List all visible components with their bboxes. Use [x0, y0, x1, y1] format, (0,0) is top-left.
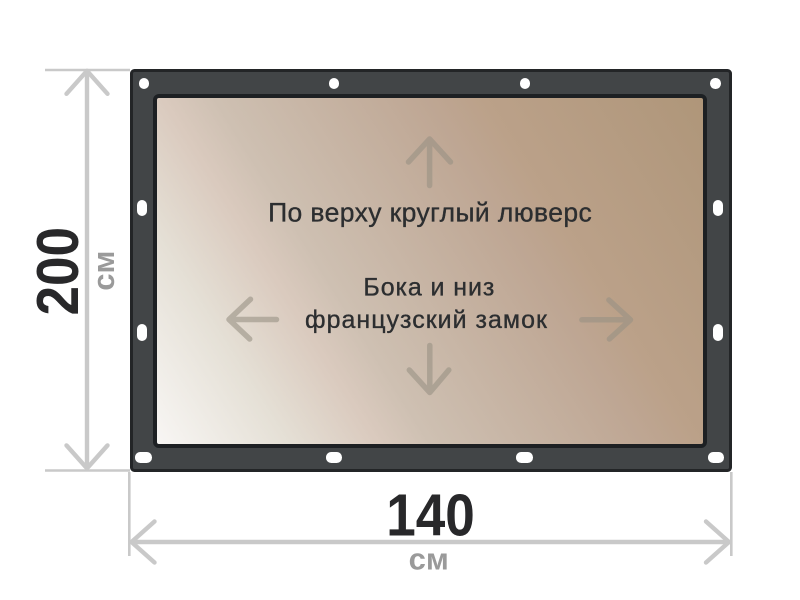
- svg-text:По верху круглый люверс: По верху круглый люверс: [268, 197, 592, 227]
- svg-text:Бока и низ: Бока и низ: [363, 274, 495, 302]
- svg-text:французский замок: французский замок: [305, 306, 548, 334]
- svg-text:140: 140: [386, 482, 475, 548]
- svg-text:см: см: [409, 541, 449, 576]
- svg-text:200: 200: [24, 227, 90, 316]
- svg-text:см: см: [86, 251, 121, 291]
